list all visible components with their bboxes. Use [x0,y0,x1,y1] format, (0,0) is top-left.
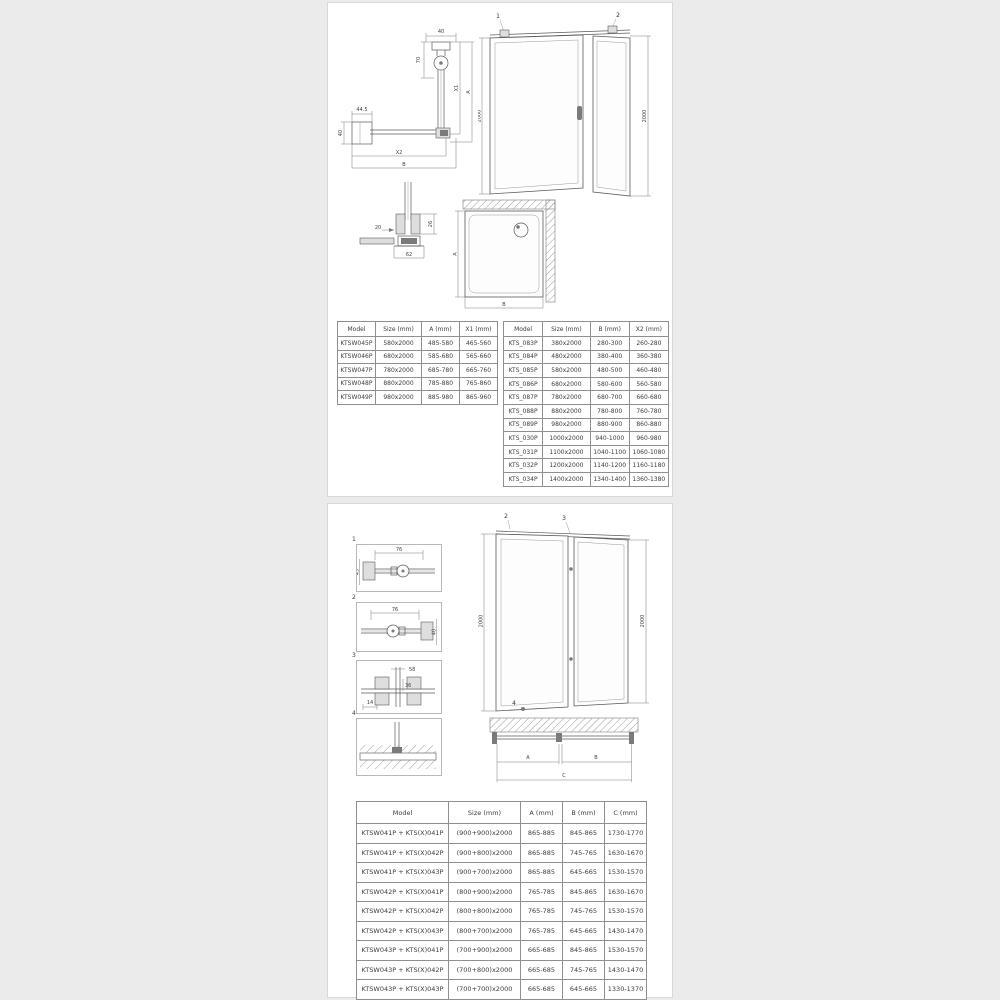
dim-label-hinge-70: 70 [416,57,422,63]
table-cell: 1430-1470 [605,921,647,941]
dim-label-26: 26 [428,221,434,227]
wall-profile-detail-diagram: 20 26 62 [358,178,450,268]
column-header: X1 (mm) [460,322,498,337]
table-cell: 980x2000 [376,391,422,405]
table-cell: (700+700)x2000 [449,980,521,1000]
table-cell: 1100x2000 [543,445,590,459]
table-cell: 1630-1670 [605,843,647,863]
table-cell: KTS_087P [504,391,543,405]
table-cell: 960-980 [629,432,668,446]
callout-2-label: 2 [616,12,620,19]
height-label-right-2000: 2000 [640,615,646,628]
table-cell: 845-865 [563,824,605,844]
dim-label-d2-76: 76 [392,607,398,613]
table-cell: KTSW042P + KTS(X)041P [357,882,449,902]
table-cell: 780x2000 [376,364,422,378]
dim-label-d1-43: 43 [357,569,361,575]
table-row: KTSW043P + KTS(X)042P(700+800)x2000665-6… [357,960,647,980]
table-row: KTSW042P + KTS(X)043P(800+700)x2000765-7… [357,921,647,941]
table-cell: (800+800)x2000 [449,902,521,922]
table-cell: 1040-1100 [590,445,629,459]
dim-label-tray-b: B [502,302,506,308]
table-cell: (800+700)x2000 [449,921,521,941]
dim-label-plan-c: C [562,773,566,779]
table-cell: 1430-1470 [605,960,647,980]
table-cell: 1400x2000 [543,472,590,486]
table-cell: 1140-1200 [590,459,629,473]
callout-door-label: 2 [504,513,508,520]
dim-label-x1: X1 [454,85,460,92]
table-cell: 680-700 [590,391,629,405]
table-cell: 685-780 [422,364,460,378]
table-cell: 645-665 [563,863,605,883]
dim-label-d1-76: 76 [396,547,402,553]
table-cell: KTS_089P [504,418,543,432]
table-cell: 880x2000 [543,404,590,418]
table-row: KTSW041P + KTS(X)042P(900+800)x2000865-8… [357,843,647,863]
table-cell: 785-880 [422,377,460,391]
table-cell: KTSW043P + KTS(X)042P [357,960,449,980]
table-cell: 845-865 [563,941,605,961]
detail-3-number: 3 [352,652,356,659]
table-cell: 580-600 [590,377,629,391]
table-cell: 460-480 [629,364,668,378]
column-header: B (mm) [590,322,629,337]
table-cell: 480x2000 [543,350,590,364]
callout-connector-label: 3 [562,515,566,522]
column-header: C (mm) [605,802,647,824]
table-cell: 665-685 [521,941,563,961]
column-header: Model [338,322,376,337]
table-cell: 745-765 [563,960,605,980]
table-row: KTSW041P + KTS(X)041P(900+900)x2000865-8… [357,824,647,844]
table-cell: 745-765 [563,902,605,922]
table-cell: KTS_086P [504,377,543,391]
column-header: X2 (mm) [629,322,668,337]
dim-label-b: B [402,162,406,168]
table-cell: 665-760 [460,364,498,378]
table-row: KTS_089P980x2000880-900860-880 [504,418,669,432]
dim-label-x2: X2 [396,150,403,156]
table-cell: 645-665 [563,921,605,941]
table-cell: 565-660 [460,350,498,364]
table-cell: KTS_085P [504,364,543,378]
table-cell: 660-680 [629,391,668,405]
table-cell: 1530-1570 [605,941,647,961]
dim-label-d3-58: 58 [409,667,415,673]
table-cell: KTS_084P [504,350,543,364]
table-cell: 1160-1180 [629,459,668,473]
table-row: KTS_083P380x2000280-300260-280 [504,337,669,351]
callout-floor-label: 4 [512,700,516,707]
dim-label-d2-40: 40 [432,629,438,635]
table-cell: 1200x2000 [543,459,590,473]
table-cell: 380-400 [590,350,629,364]
detail-4-number: 4 [352,710,356,717]
table-cell: 845-865 [563,882,605,902]
corner-elevation-diagram: 1 2 2000 2000 [478,8,668,208]
column-header: A (mm) [521,802,563,824]
table-cell: 480-500 [590,364,629,378]
table-cell: 1530-1570 [605,902,647,922]
table-cell: (800+900)x2000 [449,882,521,902]
door-size-table: ModelSize (mm)A (mm)X1 (mm) KTSW045P580x… [337,321,498,405]
table-cell: 665-685 [521,980,563,1000]
callout-1-label: 1 [496,13,500,20]
column-header: Size (mm) [449,802,521,824]
table-cell: KTSW043P + KTS(X)043P [357,980,449,1000]
table-cell: KTS_031P [504,445,543,459]
table-cell: 760-780 [629,404,668,418]
table-cell: (900+900)x2000 [449,824,521,844]
table-row: KTSW042P + KTS(X)042P(800+800)x2000765-7… [357,902,647,922]
height-label-right-2000: 2000 [642,110,648,123]
table-cell: 465-560 [460,337,498,351]
table-cell: KTSW041P + KTS(X)041P [357,824,449,844]
dim-label-d3-36: 36 [405,683,411,689]
table-cell: KTS_083P [504,337,543,351]
corner-plan-diagram: 40 70 X1 A 44.5 40 X2 B [336,26,481,176]
table-cell: (700+800)x2000 [449,960,521,980]
dim-label-44-5: 44.5 [356,107,367,113]
table-cell: 580x2000 [543,364,590,378]
dim-label-62: 62 [406,252,412,258]
table-row: KTSW048P880x2000785-880765-860 [338,377,498,391]
table-cell: 280-300 [590,337,629,351]
detail-1-number: 1 [352,536,356,543]
table-cell: 1530-1570 [605,863,647,883]
table-cell: 865-885 [521,843,563,863]
table-row: KTS_087P780x2000680-700660-680 [504,391,669,405]
table-cell: 765-860 [460,377,498,391]
table-cell: KTS_032P [504,459,543,473]
table-cell: 380x2000 [543,337,590,351]
detail-4-box [356,718,442,776]
table-cell: (900+700)x2000 [449,863,521,883]
table-cell: KTSW047P [338,364,376,378]
table-cell: 260-280 [629,337,668,351]
table-cell: KTSW046P [338,350,376,364]
table-cell: KTS_030P [504,432,543,446]
table-row: KTSW042P + KTS(X)041P(800+900)x2000765-7… [357,882,647,902]
table-cell: 780-800 [590,404,629,418]
table-cell: 360-380 [629,350,668,364]
table-cell: KTS_034P [504,472,543,486]
table-cell: 1330-1370 [605,980,647,1000]
table-cell: 745-765 [563,843,605,863]
table-row: KTSW043P + KTS(X)043P(700+700)x2000665-6… [357,980,647,1000]
spec-panel-door-with-wall: 40 70 X1 A 44.5 40 X2 B 1 [327,2,673,497]
table-row: KTSW046P680x2000585-680565-660 [338,350,498,364]
table-cell: 765-785 [521,882,563,902]
table-header-row: ModelSize (mm)A (mm)B (mm)C (mm) [357,802,647,824]
detail-2-box: 76 40 [356,602,442,652]
table-row: KTS_086P680x2000580-600560-580 [504,377,669,391]
detail-3-diagram: 58 36 14 [357,661,439,711]
dim-label-20: 20 [375,225,381,231]
table-row: KTS_088P880x2000780-800760-780 [504,404,669,418]
table-row: KTS_084P480x2000380-400360-380 [504,350,669,364]
table-cell: KTSW048P [338,377,376,391]
table-cell: KTSW049P [338,391,376,405]
table-cell: 865-885 [521,824,563,844]
table-row: KTSW043P + KTS(X)041P(700+900)x2000665-6… [357,941,647,961]
table-row: KTS_085P580x2000480-500460-480 [504,364,669,378]
dim-label-plan-b: B [594,755,598,761]
dim-label-top-40: 40 [438,29,444,35]
detail-1-box: 76 43 [356,544,442,592]
table-row: KTS_032P1200x20001140-12001160-1180 [504,459,669,473]
table-cell: 560-580 [629,377,668,391]
tray-plan-diagram: A B [453,198,568,318]
dim-label-plan-a: A [526,755,530,761]
table-cell: 645-665 [563,980,605,1000]
table-cell: 485-580 [422,337,460,351]
table-cell: 1340-1400 [590,472,629,486]
table-cell: 940-1000 [590,432,629,446]
dim-label-a: A [466,90,472,94]
table-cell: 665-685 [521,960,563,980]
table-cell: 860-880 [629,418,668,432]
detail-3-box: 58 36 14 [356,660,442,714]
table-cell: 765-785 [521,902,563,922]
table-row: KTSW045P580x2000485-580465-560 [338,337,498,351]
table-cell: 1730-1770 [605,824,647,844]
table-row: KTSW041P + KTS(X)043P(900+700)x2000865-8… [357,863,647,883]
table-cell: 1000x2000 [543,432,590,446]
table-cell: KTSW041P + KTS(X)042P [357,843,449,863]
table-cell: (700+900)x2000 [449,941,521,961]
detail-1-diagram: 76 43 [357,545,439,589]
table-cell: 980x2000 [543,418,590,432]
table-row: KTS_031P1100x20001040-11001060-1080 [504,445,669,459]
table-header-row: ModelSize (mm)B (mm)X2 (mm) [504,322,669,337]
table-cell: 680x2000 [376,350,422,364]
table-cell: (900+800)x2000 [449,843,521,863]
table-row: KTS_034P1400x20001340-14001360-1380 [504,472,669,486]
table-cell: 1060-1080 [629,445,668,459]
dim-label-tray-a: A [453,252,459,256]
combo-size-table: ModelSize (mm)A (mm)B (mm)C (mm) KTSW041… [356,801,647,1000]
table-row: KTSW047P780x2000685-780665-760 [338,364,498,378]
height-label-left-2000: 2000 [478,110,483,123]
table-cell: 865-885 [521,863,563,883]
dim-label-d3-14: 14 [367,700,373,706]
table-cell: KTSW045P [338,337,376,351]
table-cell: 680x2000 [543,377,590,391]
detail-4-diagram [357,719,439,773]
table-row: KTS_030P1000x2000940-1000960-980 [504,432,669,446]
wall-size-table: ModelSize (mm)B (mm)X2 (mm) KTS_083P380x… [503,321,669,487]
table-cell: KTSW042P + KTS(X)043P [357,921,449,941]
table-cell: 580x2000 [376,337,422,351]
table-cell: 1630-1670 [605,882,647,902]
table-header-row: ModelSize (mm)A (mm)X1 (mm) [338,322,498,337]
column-header: Size (mm) [543,322,590,337]
table-cell: KTS_088P [504,404,543,418]
dim-label-left-40: 40 [338,130,344,136]
detail-2-number: 2 [352,594,356,601]
table-cell: 865-960 [460,391,498,405]
table-cell: 585-680 [422,350,460,364]
table-cell: 780x2000 [543,391,590,405]
combo-plan-diagram: A B C [488,716,643,798]
table-cell: 765-785 [521,921,563,941]
column-header: Size (mm) [376,322,422,337]
table-row: KTSW049P980x2000885-980865-960 [338,391,498,405]
height-label-left-2000: 2000 [479,615,485,628]
column-header: B (mm) [563,802,605,824]
table-cell: KTSW043P + KTS(X)041P [357,941,449,961]
column-header: Model [357,802,449,824]
table-cell: KTSW041P + KTS(X)043P [357,863,449,883]
detail-2-diagram: 76 40 [357,603,439,649]
spec-panel-door-wall-combo: 1 76 43 2 76 40 3 [327,503,673,998]
table-cell: 880x2000 [376,377,422,391]
table-cell: KTSW042P + KTS(X)042P [357,902,449,922]
column-header: Model [504,322,543,337]
combo-elevation-diagram: 2 3 1 4 2000 2000 [478,509,663,714]
table-cell: 885-980 [422,391,460,405]
table-cell: 880-900 [590,418,629,432]
column-header: A (mm) [422,322,460,337]
table-cell: 1360-1380 [629,472,668,486]
